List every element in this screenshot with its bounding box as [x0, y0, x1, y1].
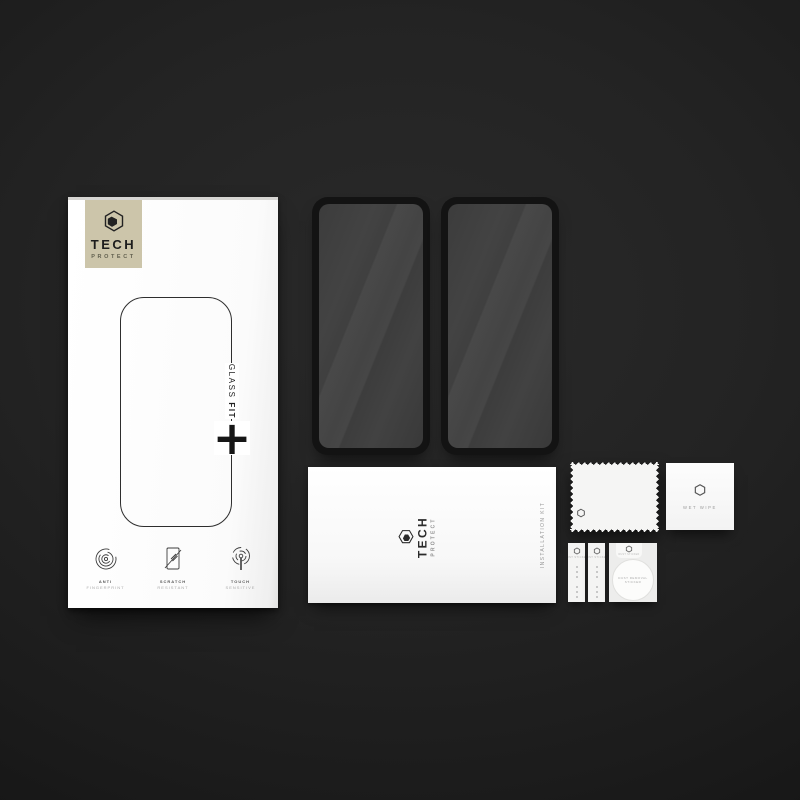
glass-surface [448, 204, 552, 448]
perforation-dashes [596, 566, 598, 579]
product-photo-scene: TECH PROTECT GLASS FIT + ANTI FINGERPRIN… [0, 0, 800, 800]
microfiber-cloth [570, 462, 659, 532]
wet-wipe-label: WET WIPE [683, 505, 717, 510]
pouch-brand-logo: TECH PROTECT [398, 516, 437, 558]
dust-sticker-strip: DUST STICKER [588, 543, 605, 602]
wet-wipe-sachet: WET WIPE [666, 463, 734, 530]
series-label: GLASS [228, 363, 237, 402]
scratch-icon [160, 545, 186, 573]
feature-line2: SENSITIVE [226, 585, 256, 590]
plus-mark-box: + [214, 421, 250, 455]
feature-line2: RESISTANT [157, 585, 188, 590]
installation-kit-pouch: TECH PROTECT INSTALLATION KIT [308, 467, 556, 603]
sticker-tab: DUST STICKER [616, 543, 642, 558]
feature-line2: FINGERPRINT [86, 585, 124, 590]
dust-removal-sticker-card: DUST REMOVAL STICKER DUST STICKER [609, 543, 657, 602]
feature-anti-fingerprint: ANTI FINGERPRINT [76, 545, 136, 590]
perforation-dashes [596, 586, 598, 599]
hexagon-logo-icon [398, 529, 415, 546]
brand-word-top: TECH [416, 516, 430, 558]
perforation-dashes [576, 586, 578, 599]
installation-kit-label: INSTALLATION KIT [540, 502, 546, 568]
glass-surface [319, 204, 423, 448]
hexagon-logo-icon [576, 508, 586, 518]
brand-badge: TECH PROTECT [85, 200, 142, 268]
dust-strip-label: DUST STICKER [568, 556, 585, 559]
tempered-glass-left [312, 197, 430, 455]
hexagon-logo-icon [102, 209, 126, 233]
feature-touch-sensitive: TOUCH SENSITIVE [211, 545, 271, 590]
brand-word-top: TECH [91, 237, 136, 252]
hexagon-logo-icon [593, 547, 601, 555]
round-sticker-line2: STICKER [625, 580, 642, 584]
brand-word-bottom: PROTECT [91, 254, 135, 260]
dust-strip-label: DUST STICKER [618, 553, 639, 556]
hexagon-logo-icon [693, 483, 707, 497]
tempered-glass-right [441, 197, 559, 455]
round-sticker: DUST REMOVAL STICKER [612, 559, 654, 601]
feature-row: ANTI FINGERPRINT SCRATCH RESISTANT [68, 545, 278, 590]
brand-word-bottom: PROTECT [431, 517, 437, 556]
feature-line1: SCRATCH [160, 579, 186, 584]
feature-line1: ANTI [99, 579, 112, 584]
retail-box: TECH PROTECT GLASS FIT + ANTI FINGERPRIN… [68, 197, 278, 608]
fingerprint-icon [93, 545, 119, 573]
hexagon-logo-icon [625, 545, 633, 553]
plus-icon: + [213, 424, 252, 452]
dust-sticker-strip: DUST STICKER [568, 543, 585, 602]
feature-scratch-resistant: SCRATCH RESISTANT [143, 545, 203, 590]
touch-icon [228, 545, 254, 573]
dust-strip-label: DUST STICKER [588, 556, 605, 559]
hexagon-logo-icon [573, 547, 581, 555]
feature-line1: TOUCH [231, 579, 250, 584]
perforation-dashes [576, 566, 578, 579]
